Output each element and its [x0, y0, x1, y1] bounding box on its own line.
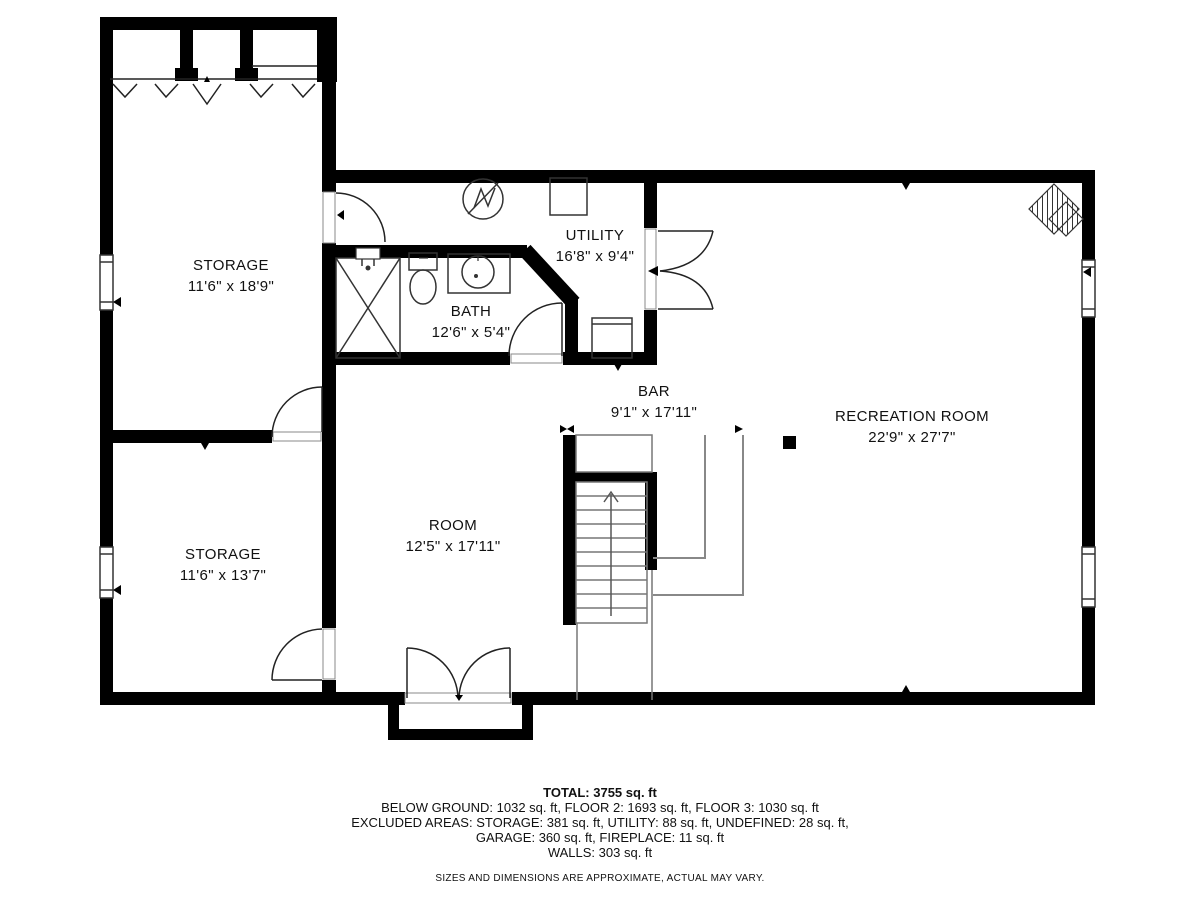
room-label-recreation: RECREATION ROOM 22'9" x 27'7" — [835, 406, 989, 448]
summary-total: TOTAL: 3755 sq. ft — [100, 785, 1100, 800]
door-utility-double — [645, 229, 713, 309]
wall-post — [783, 436, 796, 449]
summary-disclaimer: SIZES AND DIMENSIONS ARE APPROXIMATE, AC… — [100, 871, 1100, 886]
room-name: STORAGE — [180, 544, 266, 565]
wall — [322, 30, 336, 192]
wall — [100, 598, 113, 705]
room-name: STORAGE — [188, 255, 274, 276]
window — [1082, 260, 1095, 317]
room-name: UTILITY — [556, 225, 635, 246]
dimension-tick — [735, 425, 743, 433]
garage-bay-detail — [110, 66, 317, 104]
window — [1082, 547, 1095, 607]
chevron-mark — [113, 84, 137, 97]
wall — [1082, 607, 1095, 705]
room-name: RECREATION ROOM — [835, 406, 989, 427]
room-label-bath: BATH 12'6" x 5'4" — [432, 301, 511, 343]
wall — [322, 245, 527, 258]
chevron-mark — [193, 84, 221, 104]
dimension-tick — [337, 210, 344, 220]
wall — [576, 472, 657, 482]
wall-post — [180, 30, 193, 68]
room-dims: 9'1" x 17'11" — [611, 402, 697, 423]
room-dims: 11'6" x 13'7" — [180, 565, 266, 586]
bar-counter — [653, 435, 743, 595]
dimension-tick — [113, 297, 121, 307]
chevron-mark — [155, 84, 178, 97]
wall — [322, 243, 336, 628]
sink-icon — [448, 254, 510, 293]
wall — [322, 170, 1095, 183]
window — [100, 255, 113, 310]
dimension-tick — [902, 685, 910, 692]
dimension-tick — [113, 585, 121, 595]
wall — [1082, 317, 1095, 547]
door-entry-double — [405, 648, 511, 703]
floor-plan-page: STORAGE 11'6" x 18'9" BATH 12'6" x 5'4" … — [0, 0, 1200, 900]
door-storage-lower — [272, 629, 335, 680]
room-dims: 22'9" x 27'7" — [835, 427, 989, 448]
room-dims: 12'6" x 5'4" — [432, 322, 511, 343]
wall — [100, 17, 337, 30]
shower-valve-icon — [356, 248, 380, 271]
wall-post — [240, 30, 253, 68]
dimension-tick — [902, 183, 910, 190]
room-label-storage-upper: STORAGE 11'6" x 18'9" — [188, 255, 274, 297]
toilet-icon — [409, 253, 437, 304]
summary-excluded-1: EXCLUDED AREAS: STORAGE: 381 sq. ft, UTI… — [100, 815, 1100, 830]
dimension-tick — [567, 425, 574, 433]
window — [100, 547, 113, 598]
floor-plan-drawing — [0, 0, 1200, 900]
fireplace-icon — [1029, 184, 1083, 236]
walls — [100, 17, 1095, 740]
wall — [644, 310, 657, 365]
shower-icon — [336, 248, 400, 358]
door-storage-divider — [272, 387, 322, 441]
dimension-tick — [560, 425, 567, 433]
wall — [563, 435, 576, 625]
wall — [322, 680, 336, 694]
room-label-bar: BAR 9'1" x 17'11" — [611, 381, 697, 423]
stair-landing — [576, 435, 652, 472]
dimension-tick — [614, 364, 622, 371]
wall — [644, 183, 657, 228]
wall — [100, 310, 113, 547]
room-name: BAR — [611, 381, 697, 402]
area-summary: TOTAL: 3755 sq. ft BELOW GROUND: 1032 sq… — [100, 785, 1100, 886]
appliance-icon — [550, 178, 587, 215]
summary-floors: BELOW GROUND: 1032 sq. ft, FLOOR 2: 1693… — [100, 800, 1100, 815]
room-dims: 11'6" x 18'9" — [188, 276, 274, 297]
room-label-room: ROOM 12'5" x 17'11" — [405, 515, 500, 557]
wall — [100, 692, 405, 705]
door-storage-upper — [323, 192, 385, 243]
room-dims: 12'5" x 17'11" — [405, 536, 500, 557]
room-dims: 16'8" x 9'4" — [556, 246, 635, 267]
doors — [272, 192, 713, 703]
room-label-storage-lower: STORAGE 11'6" x 13'7" — [180, 544, 266, 586]
furnace-icon — [463, 179, 503, 219]
wall — [1082, 170, 1095, 260]
chevron-mark — [292, 84, 315, 97]
wall — [512, 692, 1095, 705]
wall — [100, 430, 272, 443]
chevron-mark — [250, 84, 273, 97]
dimension-tick — [201, 443, 209, 450]
room-name: BATH — [432, 301, 511, 322]
wall — [322, 692, 354, 705]
door-bath — [509, 303, 562, 363]
room-label-utility: UTILITY 16'8" x 9'4" — [556, 225, 635, 267]
room-name: ROOM — [405, 515, 500, 536]
summary-excluded-2: GARAGE: 360 sq. ft, FIREPLACE: 11 sq. ft — [100, 830, 1100, 845]
summary-walls: WALLS: 303 sq. ft — [100, 845, 1100, 860]
stoop-wall — [388, 729, 533, 740]
wall — [565, 298, 578, 360]
wall — [100, 17, 113, 255]
